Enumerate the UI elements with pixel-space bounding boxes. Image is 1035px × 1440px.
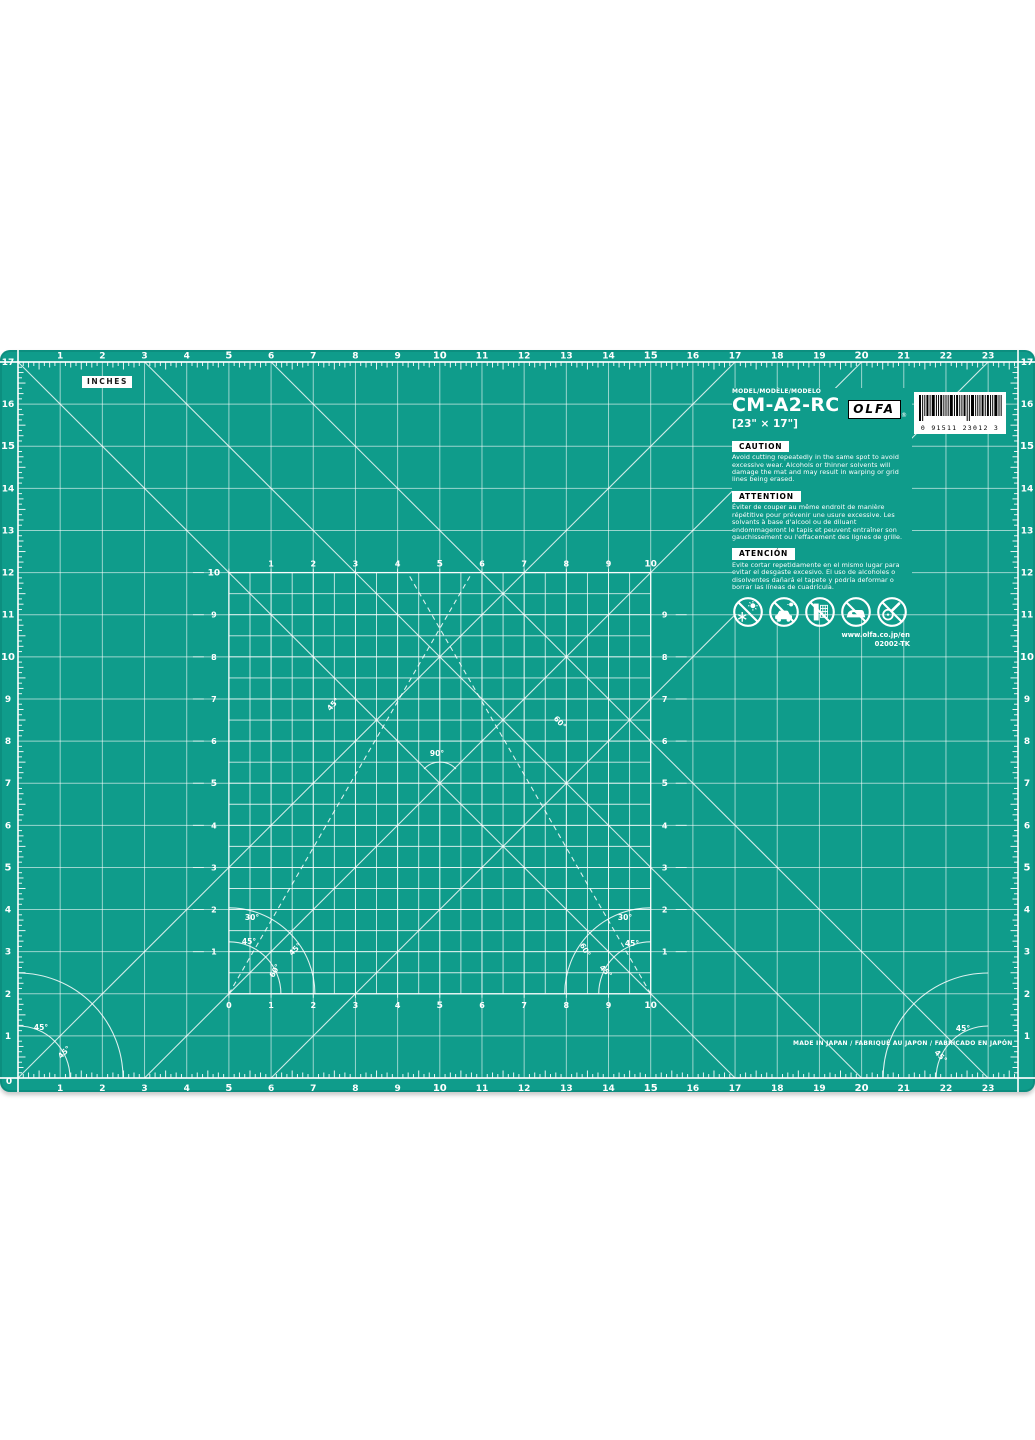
grid-number: 12 [518,352,531,362]
angle-label: 90° [430,749,444,758]
barcode-digits: 0 91511 23012 3 [918,425,1002,433]
grid-number: 9 [211,611,217,620]
grid-number: 13 [2,526,15,536]
grid-number: 20 [855,1083,869,1092]
grid-number: 19 [813,1084,826,1092]
caution-text-fr: Éviter de couper au même endroit de mani… [732,504,912,541]
grid-number: 3 [353,1001,359,1010]
grid-number: 1 [1024,1032,1030,1042]
caution-text-en: Avoid cutting repeatedly in the same spo… [732,454,912,484]
grid-number: 13 [1021,526,1034,536]
grid-number: 5 [1024,862,1031,873]
grid-number: 14 [2,484,15,494]
grid-number: 9 [394,352,400,362]
grid-number: 17 [1021,358,1034,368]
grid-number: 8 [211,653,217,662]
barcode: 0 91511 23012 3 [914,392,1006,434]
grid-number: 5 [437,560,443,570]
grid-number: 7 [310,352,316,362]
grid-number: 5 [225,1083,232,1092]
grid-number: 3 [141,352,147,362]
grid-number: 2 [99,1084,105,1092]
grid-number: 6 [662,737,668,746]
grid-number: 6 [479,1001,485,1010]
grid-number: 9 [1024,695,1030,705]
grid-number: 10 [1020,652,1034,663]
grid-number: 7 [310,1084,316,1092]
angle-label: 45° [242,937,256,946]
grid-number: 15 [644,1083,658,1092]
brand-logo: OLFA® [848,398,907,419]
grid-number: 9 [606,560,612,569]
grid-number: 11 [2,611,15,621]
olfa-logo-text: OLFA [848,400,901,419]
grid-number: 6 [268,1084,274,1092]
grid-number: 15 [644,351,658,362]
inches-unit-badge: INCHES [82,376,132,388]
grid-number: 22 [940,1084,953,1092]
model-number: CM-A2-RC [732,396,841,416]
grid-number: 8 [352,1084,358,1092]
grid-number: 4 [184,1084,190,1092]
caution-title-es: ATENCIÓN [732,548,795,559]
grid-number: 8 [564,560,570,569]
grid-number: 7 [5,779,11,789]
grid-number: 1 [268,1001,274,1010]
angle-labels: 90°30°45°45°60°30°45°45°60°45°45°45°45°4… [34,696,970,1065]
grid-number: 3 [141,1084,147,1092]
grid-number: 17 [2,358,15,368]
grid-number: 2 [211,906,217,915]
grid-number: 10 [1,652,15,663]
angle-label: 60° [578,941,593,958]
grid-number: 16 [687,352,700,362]
no-window-heat-icon [804,596,836,628]
grid-number: 3 [211,863,217,872]
grid-number: 4 [395,1001,401,1010]
grid-number: 6 [5,821,11,831]
grid-number: 1 [662,948,668,957]
angle-label: 45° [598,963,615,980]
grid-number: 2 [5,990,11,1000]
grid-number: 18 [771,1084,784,1092]
grid-number: 8 [564,1001,570,1010]
grid-number: 17 [729,1084,742,1092]
grid-number: 4 [211,821,217,830]
grid-number: 6 [479,560,485,569]
angle-label: 30° [245,913,259,922]
grid-number: 9 [394,1084,400,1092]
grid-number: 2 [99,352,105,362]
grid-number: 4 [1024,906,1030,916]
grid-number: 8 [1024,737,1030,747]
grid-number: 21 [898,352,911,362]
angle-label: 30° [618,913,632,922]
angle-label: 60° [267,962,282,979]
grid-number: 4 [5,906,11,916]
caution-title-fr: ATTENTION [732,491,801,502]
grid-number: 2 [1024,990,1030,1000]
angle-label: 45° [325,696,341,713]
angle-label: 60° [552,714,568,731]
item-code: 02002-TK [732,640,910,648]
grid-number: 1 [268,560,274,569]
grid-number: 3 [662,863,668,872]
grid-number: 5 [225,351,232,362]
grid-number: 21 [898,1084,911,1092]
no-hot-car-icon [768,596,800,628]
grid-number: 0 [6,1077,12,1087]
grid-number: 7 [521,560,527,569]
grid-number: 23 [982,1084,995,1092]
grid-number: 9 [662,611,668,620]
angle-label: 45° [34,1023,48,1032]
grid-number: 5 [662,779,668,789]
grid-number: 20 [855,351,869,362]
grid-number: 15 [1,441,15,452]
grid-number: 8 [662,653,668,662]
warning-icons-row [732,596,912,628]
grid-number: 4 [395,560,401,569]
grid-number: 7 [662,695,668,704]
label-block: MODEL/MODÈLE/MODELO CM-A2-RC [23" × 17"]… [732,388,1006,648]
grid-number: 10 [208,569,221,579]
grid-number: 12 [2,569,15,579]
grid-number: 1 [57,1084,63,1092]
grid-number: 10 [644,560,657,570]
grid-number: 10 [644,1001,657,1011]
grid-number: 12 [518,1084,531,1092]
made-in-text: MADE IN JAPAN / FABRIQUÉ AU JAPON / FABR… [793,1040,1013,1047]
grid-number: 9 [5,695,11,705]
grid-number: 6 [268,352,274,362]
grid-number: 7 [521,1001,527,1010]
grid-number: 3 [5,948,11,958]
grid-number: 14 [602,352,615,362]
grid-number: 16 [2,400,15,410]
grid-number: 3 [353,560,359,569]
grid-number: 10 [433,351,447,362]
grid-number: 5 [5,862,12,873]
grid-number: 14 [1021,484,1034,494]
grid-number: 4 [662,821,668,830]
grid-number: 13 [560,352,573,362]
grid-number: 13 [560,1084,573,1092]
grid-number: 3 [1024,948,1030,958]
grid-number: 2 [310,1001,316,1010]
website-url: www.olfa.co.jp/en [732,631,910,639]
grid-number: 19 [813,352,826,362]
angle-label: 45° [625,939,639,948]
no-rotary-cutter-icon [876,596,908,628]
caution-text-es: Evite cortar repetidamente en el mismo l… [732,562,912,592]
no-sun-frost-icon [732,596,764,628]
grid-number: 7 [1024,779,1030,789]
grid-number: 2 [310,560,316,569]
grid-number: 10 [433,1083,447,1092]
grid-number: 18 [771,352,784,362]
registered-mark: ® [901,412,907,419]
grid-number: 1 [57,352,63,362]
grid-number: 5 [437,1001,443,1011]
grid-number: 22 [940,352,953,362]
angle-label: 45° [956,1024,970,1033]
grid-number: 11 [476,1084,489,1092]
grid-number: 6 [1024,821,1030,831]
grid-number: 7 [211,695,217,704]
grid-number: 16 [687,1084,700,1092]
grid-number: 15 [1020,441,1034,452]
grid-number: 12 [1021,569,1034,579]
angle-label: 45° [287,941,304,958]
grid-number: 1 [5,1032,11,1042]
grid-number: 4 [184,352,190,362]
angle-label: 45° [933,1048,950,1065]
grid-number: 9 [606,1001,612,1010]
grid-number: 23 [982,352,995,362]
grid-number: 6 [211,737,217,746]
grid-number: 11 [476,352,489,362]
grid-number: 2 [662,906,668,915]
size-label: [23" × 17"] [732,418,841,430]
caution-title-en: CAUTION [732,441,789,452]
grid-number: 0 [226,1001,232,1010]
no-iron-icon [840,596,872,628]
grid-number: 8 [352,352,358,362]
grid-number: 16 [1021,400,1034,410]
angle-label: 45° [56,1044,73,1061]
grid-number: 5 [211,779,217,789]
grid-number: 14 [602,1084,615,1092]
inner-grid-lines [193,569,687,998]
grid-number: 1 [211,948,217,957]
grid-number: 17 [729,352,742,362]
grid-number: 8 [5,737,11,747]
cutting-mat: 1122334455667788991010111112121313141415… [0,350,1035,1092]
barcode-bars [918,395,1002,421]
grid-number: 11 [1021,611,1034,621]
